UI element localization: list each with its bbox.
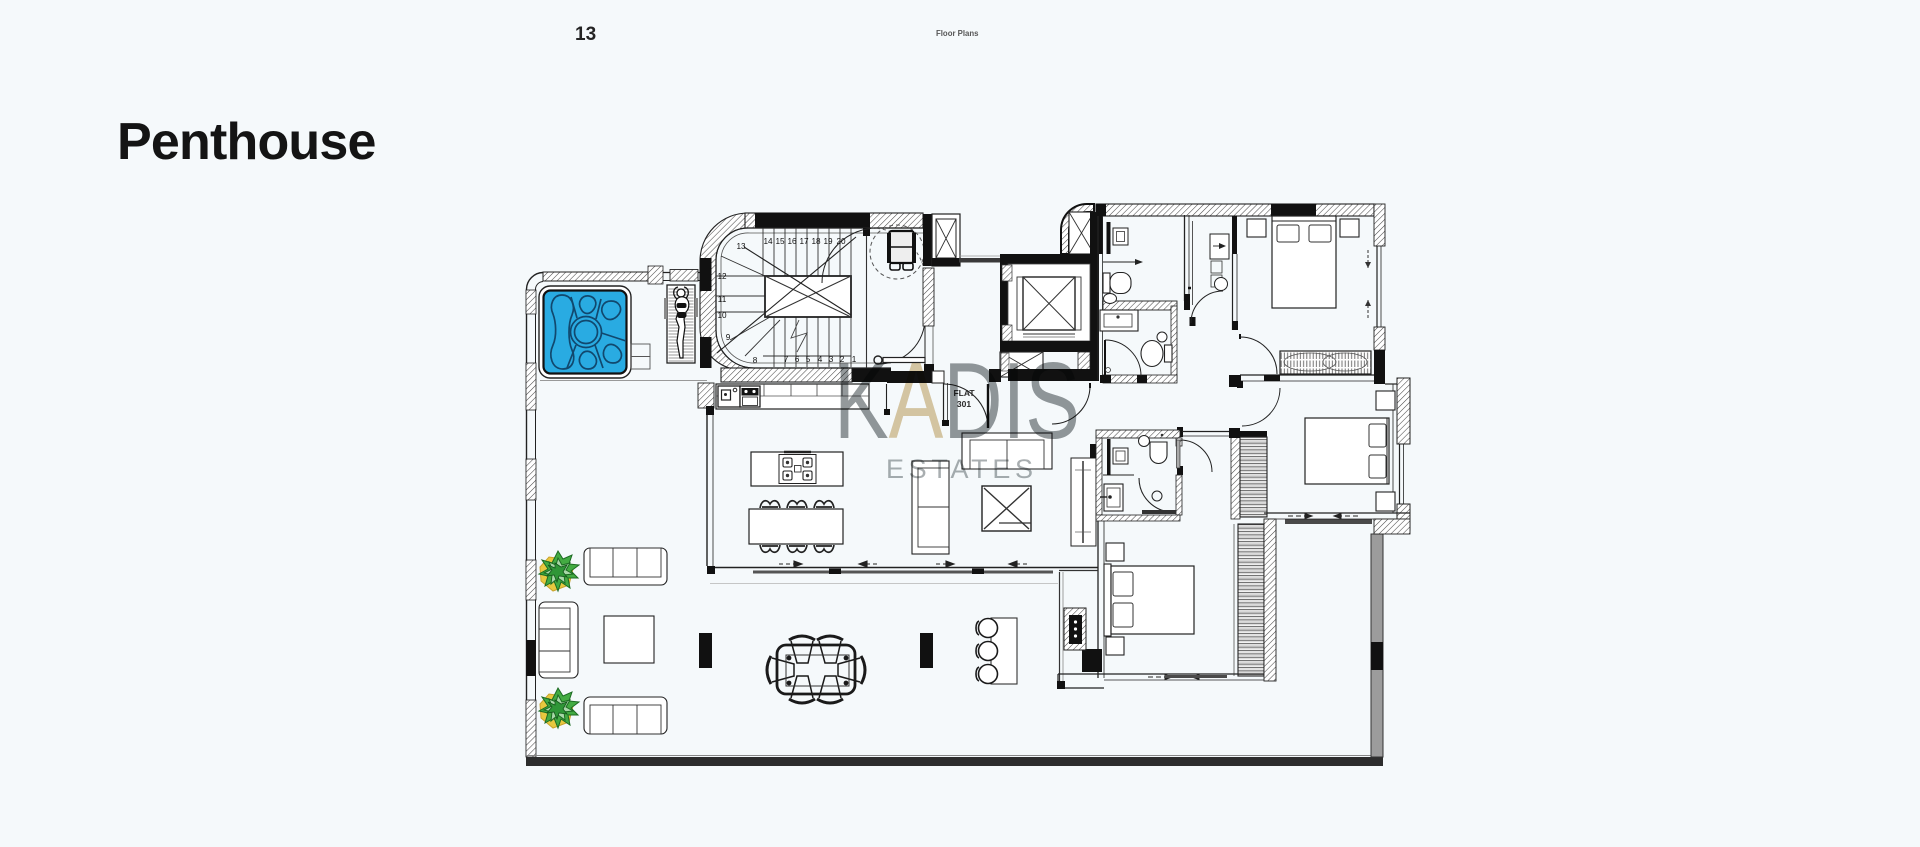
svg-text:13: 13 [736, 242, 746, 251]
svg-text:3: 3 [829, 355, 834, 364]
svg-text:8: 8 [753, 356, 758, 365]
svg-text:4: 4 [818, 355, 823, 364]
svg-text:14: 14 [763, 237, 773, 246]
svg-text:10: 10 [717, 311, 727, 320]
svg-text:S: S [1025, 341, 1080, 462]
svg-text:D: D [943, 341, 1002, 462]
svg-text:16: 16 [787, 237, 797, 246]
svg-text:I: I [1003, 341, 1026, 462]
svg-text:A: A [889, 341, 944, 462]
svg-text:17: 17 [799, 237, 809, 246]
svg-text:6: 6 [795, 355, 800, 364]
svg-text:18: 18 [811, 237, 821, 246]
svg-text:5: 5 [806, 355, 811, 364]
svg-text:11: 11 [718, 295, 727, 304]
svg-text:K: K [834, 341, 889, 462]
svg-text:7: 7 [784, 355, 789, 364]
svg-text:19: 19 [823, 237, 833, 246]
svg-text:9: 9 [726, 333, 731, 342]
svg-text:15: 15 [775, 237, 785, 246]
svg-text:12: 12 [717, 272, 727, 281]
